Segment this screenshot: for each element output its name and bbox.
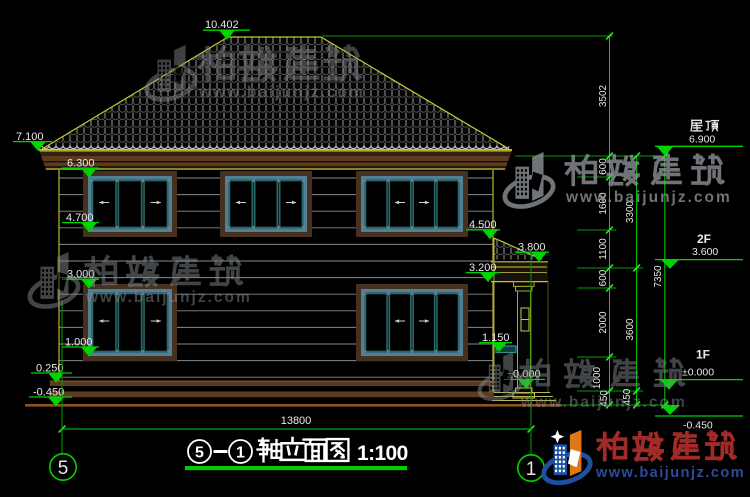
svg-text:13800: 13800 [281, 415, 312, 427]
svg-text:1F: 1F [696, 348, 710, 362]
svg-text:7350: 7350 [653, 265, 664, 288]
svg-text:6.900: 6.900 [689, 134, 715, 146]
svg-text:5: 5 [195, 445, 204, 462]
svg-text:2000: 2000 [598, 311, 609, 334]
svg-text:3600: 3600 [625, 318, 636, 341]
svg-text:5: 5 [58, 458, 69, 479]
svg-text:±0.000: ±0.000 [682, 367, 714, 379]
svg-text:1100: 1100 [598, 238, 609, 260]
svg-text:1: 1 [236, 445, 245, 462]
svg-text:-0.450: -0.450 [683, 420, 713, 432]
svg-text:2F: 2F [697, 232, 711, 246]
svg-text:www.baijunjz.com: www.baijunjz.com [198, 84, 365, 101]
svg-text:10.402: 10.402 [205, 19, 239, 31]
svg-text:3502: 3502 [598, 84, 609, 107]
svg-text:www.baijunjz.com: www.baijunjz.com [85, 289, 252, 306]
svg-text:www.baijunjz.com: www.baijunjz.com [520, 394, 687, 411]
svg-text:www.baijunjz.com: www.baijunjz.com [565, 189, 732, 206]
svg-text:www.baijunjz.com: www.baijunjz.com [595, 465, 745, 481]
svg-text:1: 1 [526, 459, 537, 480]
svg-text:600: 600 [598, 269, 609, 286]
svg-text:1:100: 1:100 [357, 442, 408, 465]
svg-text:3.600: 3.600 [692, 246, 718, 258]
